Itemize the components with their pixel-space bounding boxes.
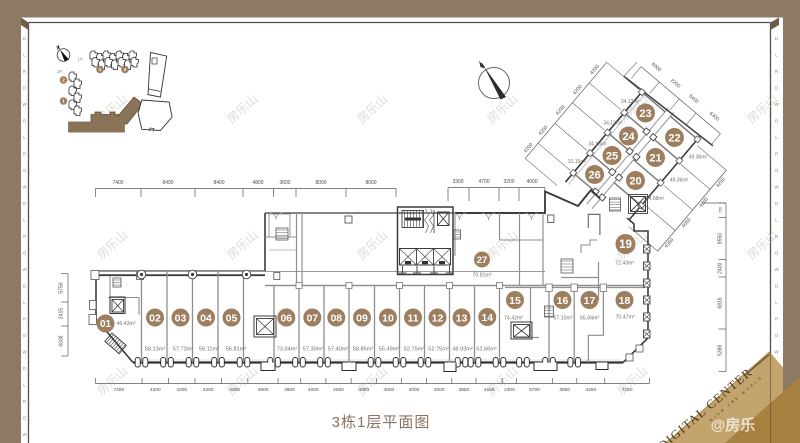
svg-text:3600: 3600 (284, 387, 295, 393)
svg-text:08: 08 (330, 312, 342, 324)
svg-text:8000: 8000 (315, 180, 326, 186)
svg-text:06: 06 (280, 312, 292, 324)
svg-text:@房乐: @房乐 (711, 416, 756, 434)
svg-text:05: 05 (226, 312, 238, 324)
svg-text:1#: 1# (77, 57, 83, 62)
svg-text:4450: 4450 (585, 387, 596, 393)
svg-text:3850: 3850 (559, 387, 570, 393)
svg-text:4150: 4150 (484, 387, 495, 393)
svg-text:07: 07 (306, 312, 318, 324)
svg-text:2415: 2415 (59, 308, 65, 319)
svg-text:46.43m²: 46.43m² (116, 321, 135, 327)
svg-text:8000: 8000 (365, 180, 376, 186)
svg-text:70.47m²: 70.47m² (615, 315, 634, 321)
svg-text:23: 23 (639, 108, 651, 120)
svg-text:52.66m²: 52.66m² (476, 347, 497, 353)
svg-text:4000: 4000 (308, 387, 319, 393)
svg-text:48.93m²: 48.93m² (452, 347, 473, 353)
svg-text:4800: 4800 (252, 180, 263, 186)
svg-text:70.81m²: 70.81m² (472, 273, 491, 279)
svg-text:19: 19 (619, 239, 632, 251)
svg-text:31.15m²: 31.15m² (568, 159, 587, 165)
svg-text:22: 22 (668, 132, 680, 144)
svg-text:11: 11 (407, 312, 418, 324)
svg-text:24: 24 (622, 131, 635, 143)
svg-text:01: 01 (100, 319, 112, 330)
svg-text:49.36m²: 49.36m² (670, 178, 689, 184)
svg-text:4000: 4000 (434, 387, 445, 393)
svg-text:4200: 4200 (150, 387, 161, 393)
svg-text:8400: 8400 (213, 180, 224, 186)
svg-text:O: O (775, 251, 779, 256)
svg-text:5700: 5700 (529, 387, 540, 393)
svg-text:3200: 3200 (503, 179, 514, 185)
svg-text:52.75m²: 52.75m² (404, 347, 425, 353)
svg-text:O: O (23, 168, 27, 173)
svg-text:34.13m²: 34.13m² (603, 121, 622, 127)
svg-text:58.13m²: 58.13m² (145, 347, 166, 353)
svg-text:8550: 8550 (718, 233, 724, 244)
svg-text:16: 16 (557, 295, 569, 307)
svg-text:73.04m²: 73.04m² (277, 347, 298, 353)
svg-text:O: O (775, 333, 779, 338)
svg-text:3850: 3850 (459, 387, 470, 393)
svg-text:34.13m²: 34.13m² (588, 142, 607, 148)
svg-text:25: 25 (606, 150, 618, 162)
svg-text:49.36m²: 49.36m² (689, 155, 708, 161)
svg-text:04: 04 (200, 312, 212, 324)
svg-text:3600: 3600 (279, 180, 290, 186)
svg-text:150: 150 (719, 207, 723, 213)
svg-text:57.10m²: 57.10m² (553, 316, 572, 322)
svg-text:14: 14 (481, 312, 493, 324)
svg-text:65.84m²: 65.84m² (580, 316, 599, 322)
svg-text:3300: 3300 (452, 179, 463, 185)
svg-text:2400: 2400 (718, 263, 724, 274)
svg-text:6816: 6816 (718, 297, 724, 308)
svg-text:55.49m²: 55.49m² (379, 347, 400, 353)
svg-text:4800: 4800 (258, 387, 269, 393)
svg-text:10: 10 (382, 312, 394, 324)
svg-text:O: O (23, 251, 27, 256)
svg-text:4000: 4000 (526, 179, 537, 185)
svg-text:7400: 7400 (113, 387, 124, 393)
svg-text:5750: 5750 (59, 282, 65, 293)
svg-text:20: 20 (629, 175, 641, 187)
svg-text:4000: 4000 (358, 387, 369, 393)
svg-text:21: 21 (649, 152, 661, 164)
svg-text:4200: 4200 (203, 387, 214, 393)
svg-text:18: 18 (619, 295, 631, 307)
svg-text:27: 27 (477, 255, 488, 266)
svg-text:72.43m²: 72.43m² (615, 261, 634, 267)
svg-text:O: O (775, 168, 779, 173)
svg-text:6036: 6036 (59, 335, 65, 346)
svg-text:4700: 4700 (478, 179, 489, 185)
svg-text:4200: 4200 (176, 387, 187, 393)
svg-text:17: 17 (584, 295, 596, 307)
svg-text:03: 03 (175, 312, 187, 324)
svg-text:4000: 4000 (333, 387, 344, 393)
svg-text:O: O (23, 416, 27, 421)
svg-text:54.08m²: 54.08m² (646, 196, 665, 202)
svg-text:57.73m²: 57.73m² (173, 347, 194, 353)
svg-text:12: 12 (432, 312, 444, 324)
svg-text:4200: 4200 (229, 387, 240, 393)
svg-text:15: 15 (509, 295, 521, 307)
svg-text:4000: 4000 (409, 387, 420, 393)
svg-text:O: O (775, 86, 779, 91)
svg-text:57.40m²: 57.40m² (328, 347, 349, 353)
svg-text:26: 26 (588, 169, 600, 181)
svg-text:4000: 4000 (384, 387, 395, 393)
svg-text:8400: 8400 (162, 180, 173, 186)
svg-text:5386: 5386 (718, 345, 724, 356)
svg-text:34.13m²: 34.13m² (621, 99, 640, 105)
svg-text:7400: 7400 (112, 180, 123, 186)
svg-text:74.42m²: 74.42m² (504, 316, 523, 322)
svg-text:2300: 2300 (504, 387, 515, 393)
svg-text:58.85m²: 58.85m² (353, 347, 374, 353)
svg-text:09: 09 (356, 312, 368, 324)
svg-text:7100: 7100 (622, 387, 633, 393)
svg-text:57.30m²: 57.30m² (303, 347, 324, 353)
svg-text:O: O (23, 333, 27, 338)
svg-text:O: O (23, 86, 27, 91)
svg-text:2#: 2# (57, 69, 63, 74)
svg-text:13: 13 (456, 312, 468, 324)
svg-text:3栋1层平面图: 3栋1层平面图 (332, 413, 431, 431)
svg-text:52.75m²: 52.75m² (428, 347, 449, 353)
svg-text:56.81m²: 56.81m² (226, 347, 247, 353)
svg-text:56.11m²: 56.11m² (199, 347, 219, 353)
svg-text:02: 02 (149, 312, 161, 324)
